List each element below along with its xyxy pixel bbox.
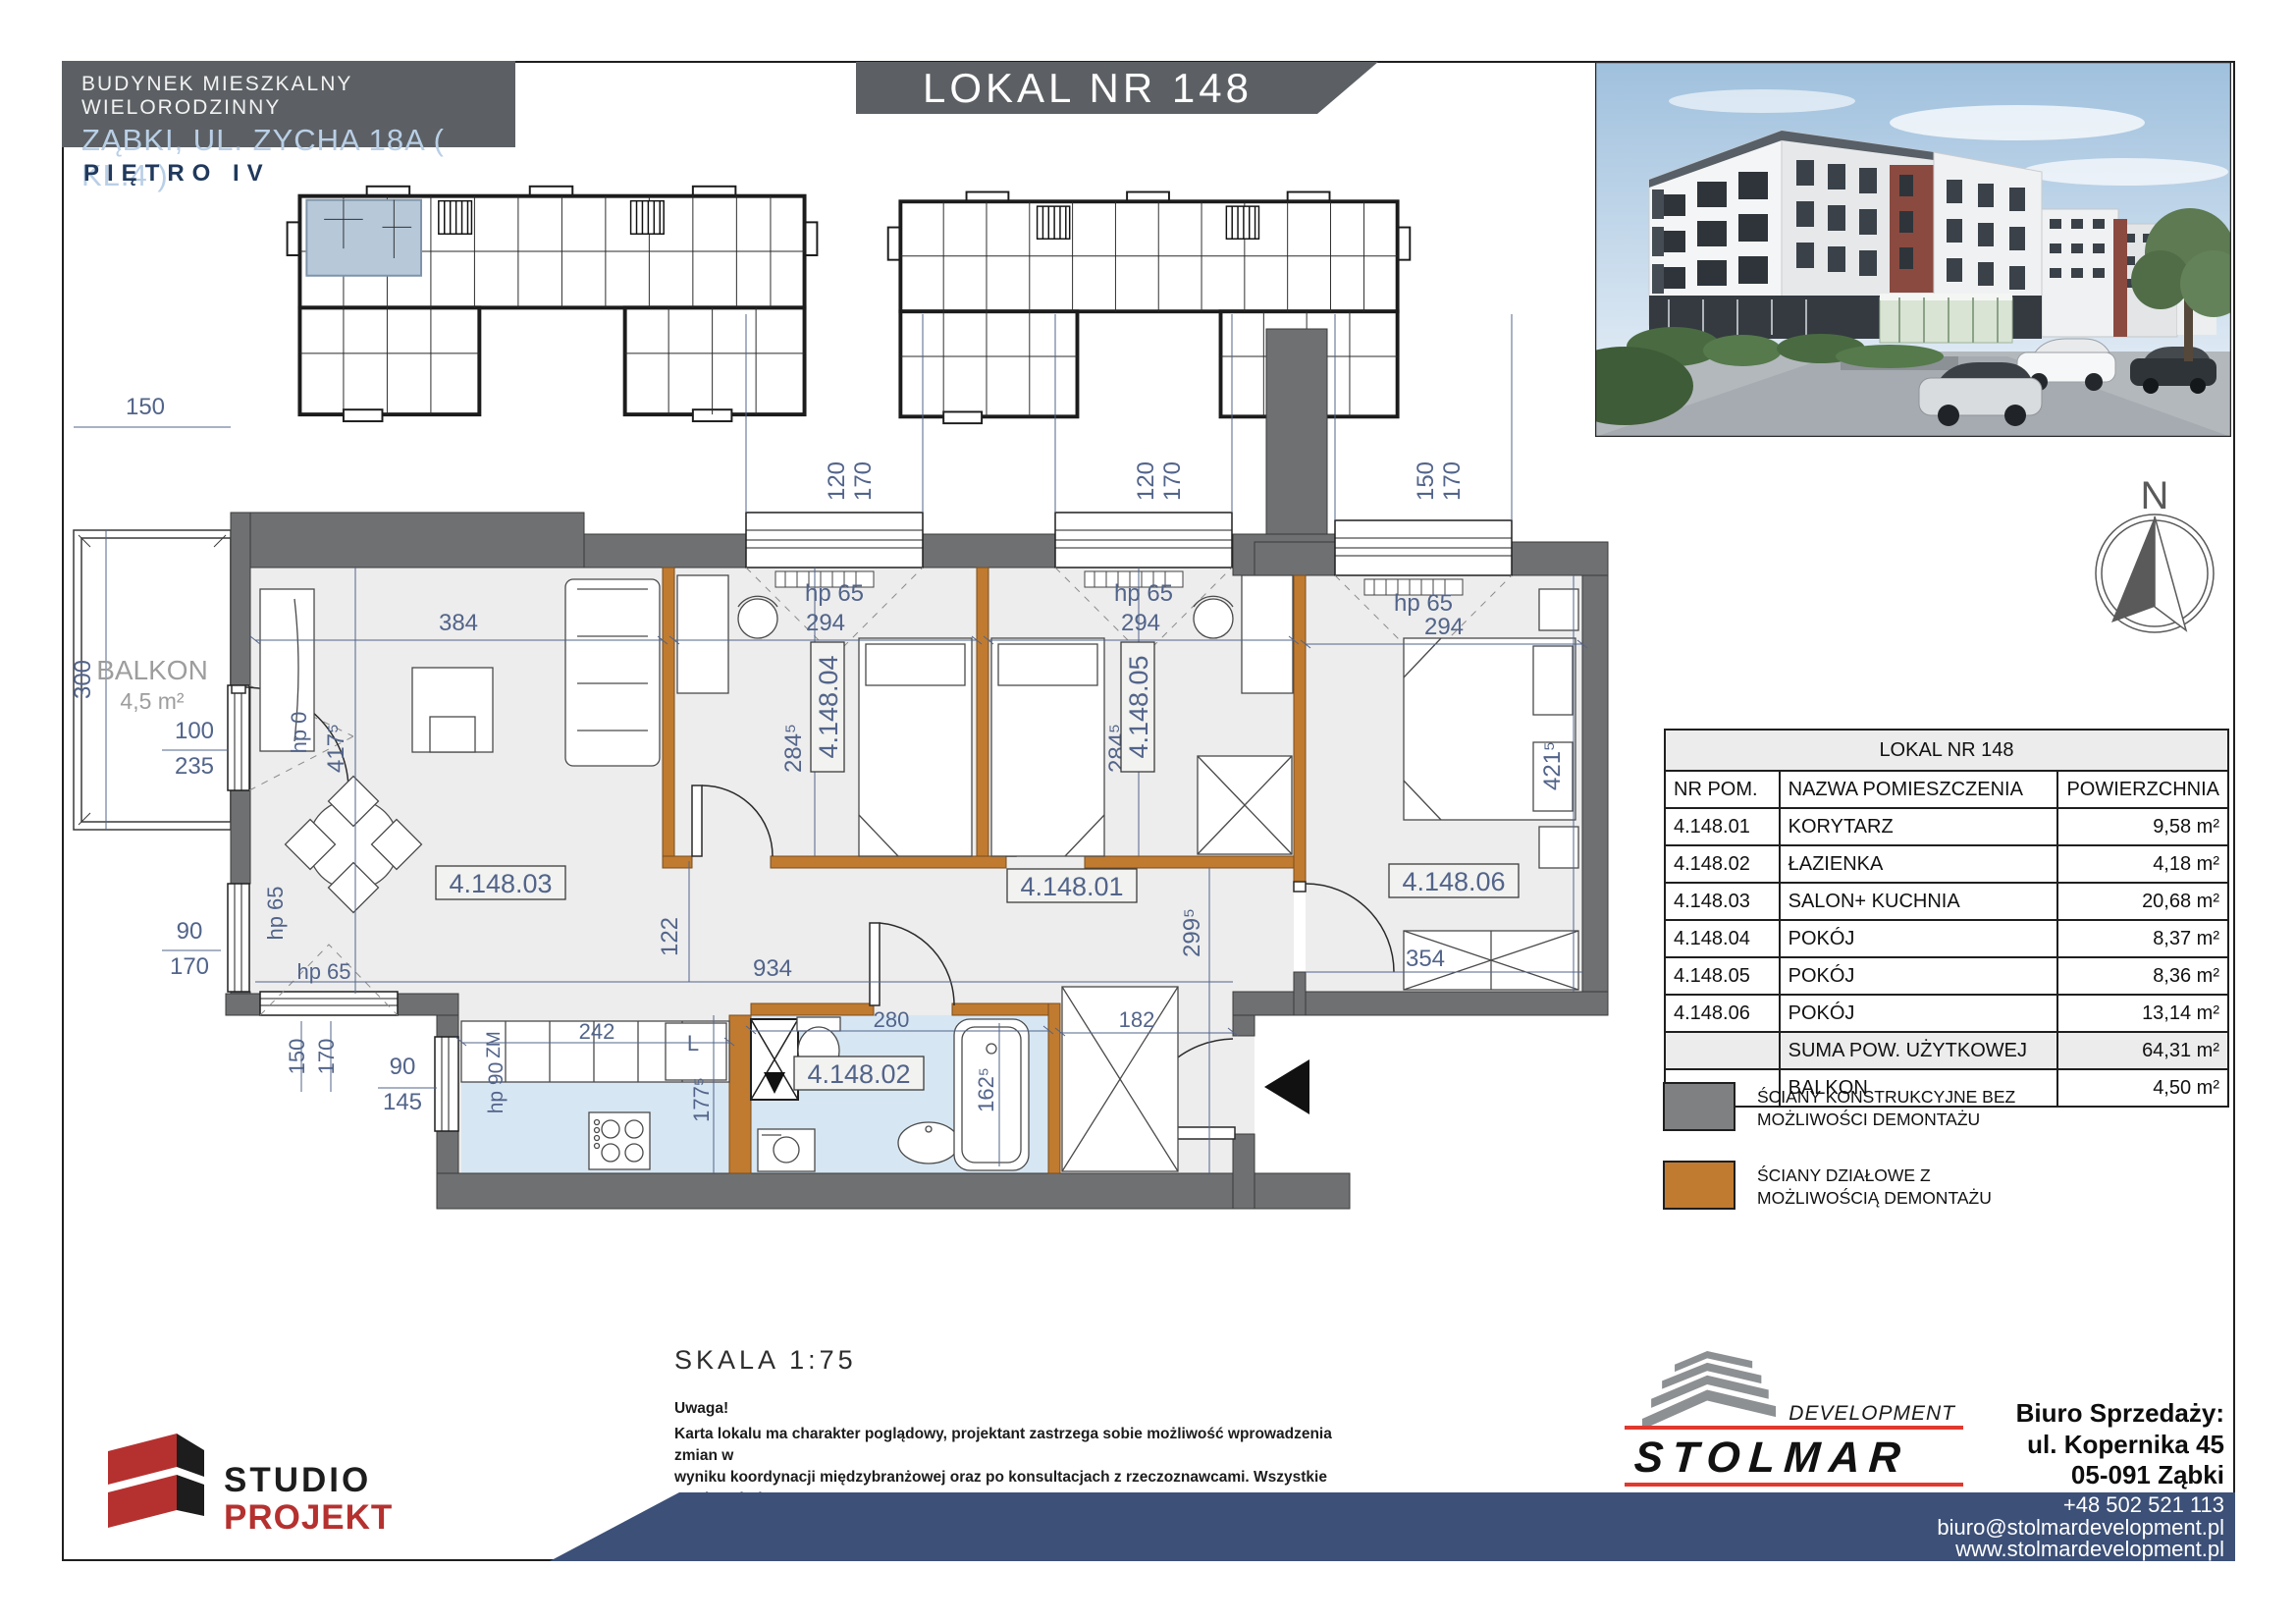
room-label: 4.148.03 [436,866,565,899]
room-id: 4.148.05 [1665,957,1780,995]
scale-label: SKALA 1:75 [674,1345,857,1376]
development-word: DEVELOPMENT [1789,1402,1955,1426]
sales-office-title: Biuro Sprzedaży: [2016,1398,2224,1430]
legend-swatch [1663,1161,1735,1210]
room-id: 4.148.02 [1665,845,1780,883]
dimension-label: 170 [1159,461,1186,501]
lokal-card-page: BUDYNEK MIESZKALNY WIELORODZINNY ZĄBKI, … [0,0,2296,1624]
legend-swatch [1663,1082,1735,1131]
room-id: 4.148.04 [1665,920,1780,957]
contact-phone: +48 502 521 113 [1937,1494,2224,1517]
balcony-label: BALKON [96,655,208,685]
room-label: 4.148.01 [1007,869,1137,902]
highlighted-unit [306,200,421,276]
sales-office-city: 05-091 Ząbki [2016,1460,2224,1491]
dimension-label: 90 [177,918,203,945]
contact-band: +48 502 521 113 biuro@stolmardevelopment… [550,1492,2235,1561]
dimension-label: hp 90 [485,1062,507,1114]
header-box: BUDYNEK MIESZKALNY WIELORODZINNY ZĄBKI, … [62,61,515,147]
sum-value: 64,31 m² [2057,1032,2228,1069]
svg-text:4.148.05: 4.148.05 [1124,655,1153,758]
dimension-label: 294 [1121,610,1160,636]
table-row: 4.148.05POKÓJ8,36 m² [1665,957,2228,995]
table-sum-row: SUMA POW. UŻYTKOWEJ 64,31 m² [1665,1032,2228,1069]
legend-label: ŚCIANY DZIAŁOWE Z MOŻLIWOŚCIĄ DEMONTAŻU [1757,1161,1992,1210]
room-area: 13,14 m² [2057,995,2228,1032]
building-type-label: BUDYNEK MIESZKALNY WIELORODZINNY [81,73,515,120]
dimension-label: 170 [170,953,209,980]
dimension-label: 384 [439,610,478,636]
dimension-label: 170 [850,461,877,501]
dimension-label: 170 [314,1039,339,1075]
svg-text:4.148.04: 4.148.04 [814,655,843,758]
contact-block: +48 502 521 113 biuro@stolmardevelopment… [1937,1494,2224,1561]
col-powierzchnia: POWIERZCHNIA [2057,771,2228,808]
stolmar-redline-top [1625,1426,1963,1430]
dimension-label: 294 [806,610,845,636]
sales-office-block: Biuro Sprzedaży: ul. Kopernika 45 05-091… [2016,1398,2224,1491]
table-title: LOKAL NR 148 [1665,730,2228,771]
stolmar-word: STOLMAR [1632,1434,1964,1483]
building-photo [1595,62,2231,437]
room-label: 4.148.04 [811,642,844,772]
projekt-word: PROJEKT [224,1498,393,1538]
sales-office-street: ul. Kopernika 45 [2016,1430,2224,1461]
dimension-label: 284⁵ [780,724,807,773]
unit-table: LOKAL NR 148 NR POM. NAZWA POMIESZCZENIA… [1664,729,2229,1108]
room-name: POKÓJ [1780,995,2058,1032]
col-nr-pom: NR POM. [1665,771,1780,808]
compass-icon: N [2086,463,2233,655]
compass-north-label: N [2141,474,2169,517]
title-banner: LOKAL NR 148 [856,62,1378,114]
svg-text:4.148.03: 4.148.03 [449,869,552,898]
floor-label: PIĘTRO IV [83,160,271,188]
dimension-label: 182 [1119,1007,1155,1032]
wall-legend: ŚCIANY KONSTRUKCYJNE BEZ MOŻLIWOŚCI DEMO… [1663,1082,2213,1239]
entrance-arrow-icon [1264,1059,1309,1114]
dimension-label: hp 65 [1394,590,1453,617]
dimension-label: 150 [1413,461,1439,501]
room-name: KORYTARZ [1780,808,2058,845]
room-name: POKÓJ [1780,920,2058,957]
dimension-label: 120 [1133,461,1159,501]
col-nazwa: NAZWA POMIESZCZENIA [1780,771,2058,808]
note-title: Uwaga! [674,1398,1352,1420]
room-label: 4.148.05 [1121,642,1154,772]
dimension-label: 100 [175,718,214,744]
legend-item: ŚCIANY KONSTRUKCYJNE BEZ MOŻLIWOŚCI DEMO… [1663,1082,2213,1131]
room-id: 4.148.06 [1665,995,1780,1032]
stolmar-building-icon [1630,1339,1788,1430]
legend-item: ŚCIANY DZIAŁOWE Z MOŻLIWOŚCIĄ DEMONTAŻU [1663,1161,2213,1210]
svg-text:4.148.01: 4.148.01 [1020,872,1123,901]
dimension-label: 242 [579,1019,615,1044]
dimension-label: hp 65 [296,959,350,984]
dimension-label: 90 [390,1054,416,1080]
contact-website[interactable]: www.stolmardevelopment.pl [1937,1539,2224,1561]
table-header-row: NR POM. NAZWA POMIESZCZENIA POWIERZCHNIA [1665,771,2228,808]
dimension-label: 421⁵ [1539,741,1566,790]
dimension-label: 235 [175,753,214,780]
dimension-label: L [687,1031,699,1056]
room-name: POKÓJ [1780,957,2058,995]
balcony-area-label: 4,5 m² [120,688,185,714]
dimension-label: hp 0 [287,712,311,754]
table-row: 4.148.02ŁAZIENKA4,18 m² [1665,845,2228,883]
room-area: 20,68 m² [2057,883,2228,920]
room-label: 4.148.02 [794,1056,924,1090]
floor-plan: 120170120170150170hp 65hp 65hp 652942942… [59,295,1649,1321]
contact-email[interactable]: biuro@stolmardevelopment.pl [1937,1517,2224,1540]
table-row: 4.148.06POKÓJ13,14 m² [1665,995,2228,1032]
dimension-label: ZM [484,1031,505,1057]
room-area: 9,58 m² [2057,808,2228,845]
dimension-label: 354 [1406,946,1445,972]
studio-projekt-icon [98,1426,216,1536]
dimension-label: 299⁵ [1179,908,1205,957]
dimension-label: hp 65 [1114,580,1173,607]
svg-text:4.148.06: 4.148.06 [1402,867,1505,896]
room-area: 4,18 m² [2057,845,2228,883]
table-row: 4.148.01KORYTARZ9,58 m² [1665,808,2228,845]
table-row: 4.148.04POKÓJ8,37 m² [1665,920,2228,957]
room-area: 8,36 m² [2057,957,2228,995]
dimension-label: 300 [70,660,96,699]
legend-label: ŚCIANY KONSTRUKCYJNE BEZ MOŻLIWOŚCI DEMO… [1757,1082,2015,1131]
stolmar-redline-bottom [1625,1483,1963,1487]
dimension-label: 150 [285,1039,309,1075]
page-title: LOKAL NR 148 [923,65,1253,112]
room-label: 4.148.06 [1389,864,1519,897]
dimension-label: 417⁵ [323,724,349,773]
dimension-label: hp 65 [263,886,288,940]
room-name: ŁAZIENKA [1780,845,2058,883]
dimension-label: 177⁵ [689,1077,714,1122]
svg-text:4.148.02: 4.148.02 [807,1059,910,1089]
sum-label: SUMA POW. UŻYTKOWEJ [1780,1032,2058,1069]
room-area: 8,37 m² [2057,920,2228,957]
dimension-label: 294 [1424,614,1464,640]
dimension-label: 150 [126,394,165,420]
room-name: SALON+ KUCHNIA [1780,883,2058,920]
dimension-label: 280 [874,1007,910,1032]
dimension-label: 120 [824,461,850,501]
dimension-label: hp 65 [805,580,864,607]
studio-word: STUDIO [224,1461,371,1500]
dimension-label: 934 [753,955,792,982]
room-id: 4.148.01 [1665,808,1780,845]
dimension-label: 170 [1439,461,1466,501]
dimension-label: 122 [657,917,683,956]
dimension-label: 145 [383,1089,422,1115]
dimension-label: 162⁵ [974,1067,998,1112]
table-row: 4.148.03SALON+ KUCHNIA20,68 m² [1665,883,2228,920]
room-id: 4.148.03 [1665,883,1780,920]
